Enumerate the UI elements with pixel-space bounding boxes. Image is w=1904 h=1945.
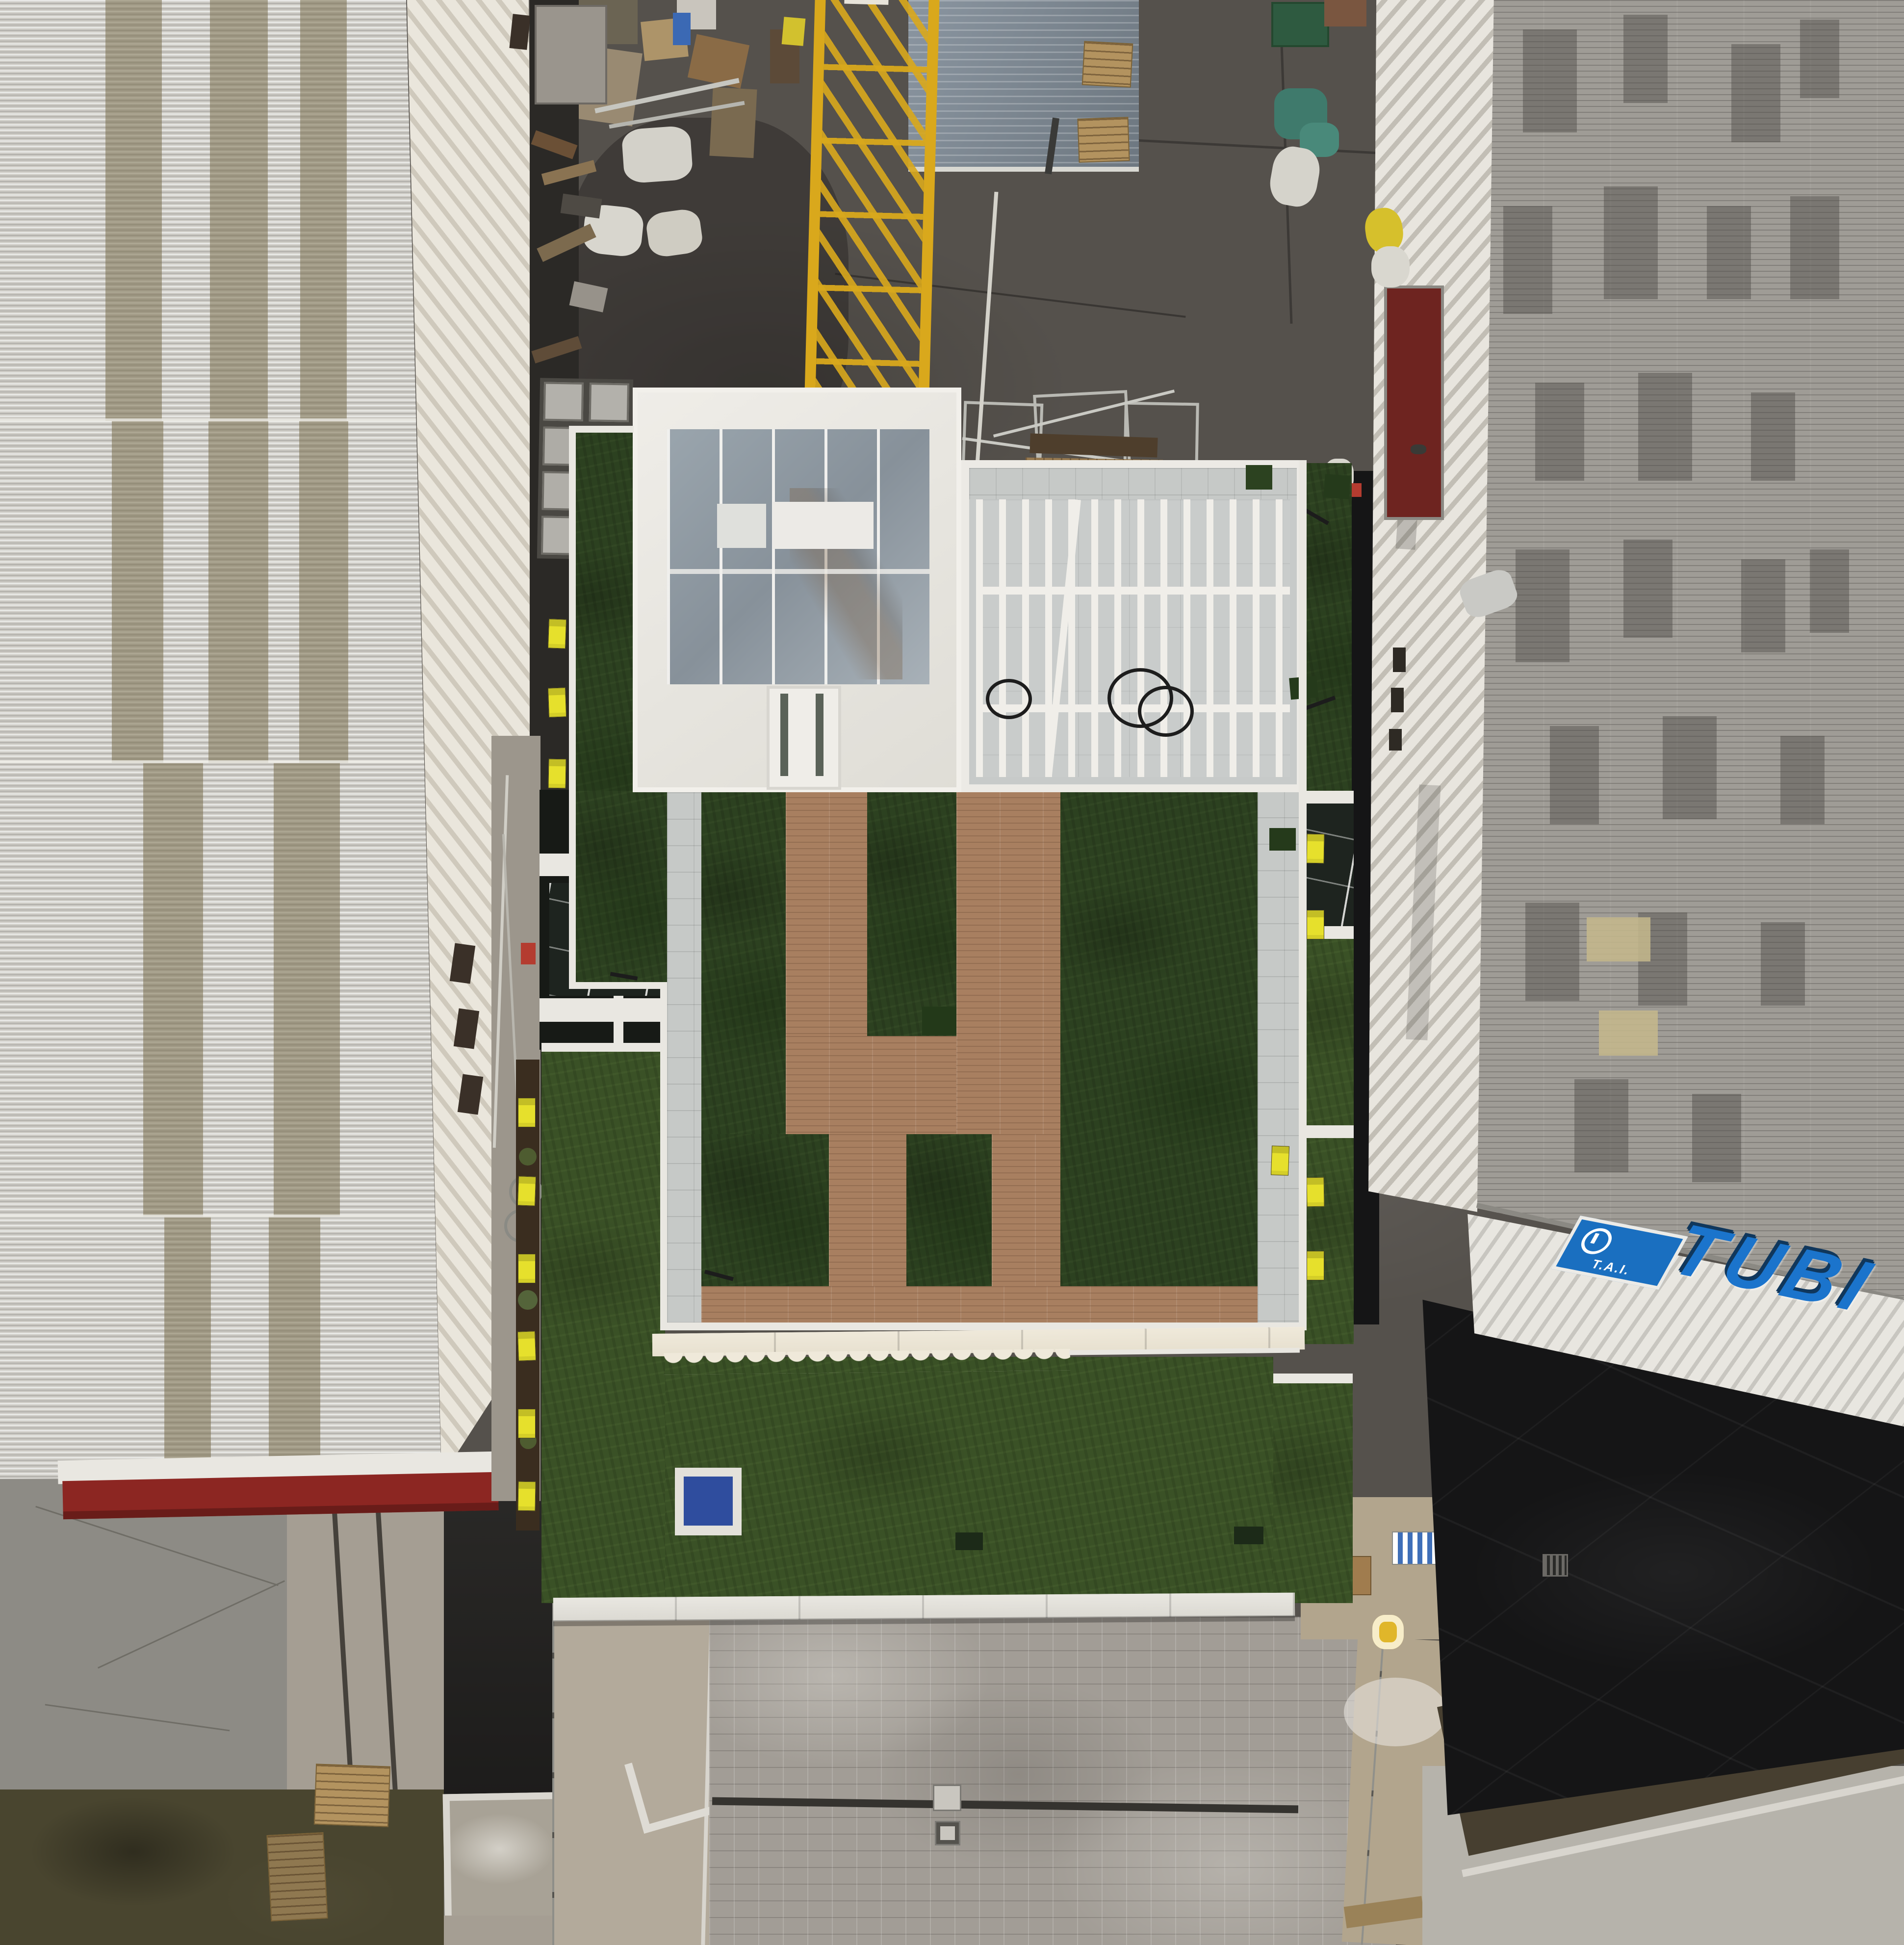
- wall-lamp: [1411, 444, 1426, 454]
- debris-plank: [569, 281, 608, 312]
- cobblestone-plaza: [709, 1617, 1396, 1945]
- warning-tag: [548, 619, 566, 648]
- pergola-beam: [976, 587, 1290, 595]
- debris-item: [709, 87, 757, 158]
- roof-patch: [1574, 1079, 1628, 1172]
- roof-tan-stripe: [299, 421, 348, 763]
- deck-bottom-band: [701, 1286, 1258, 1323]
- roof-tan-stripe: [208, 421, 268, 763]
- scalloped-awning: [663, 1349, 1070, 1376]
- grass-tile-dark: [1234, 1527, 1263, 1544]
- balcony-divider: [540, 998, 668, 1022]
- warning-tag: [1307, 910, 1324, 939]
- roof-seam: [0, 760, 444, 763]
- balcony-divider: [1305, 791, 1354, 804]
- warning-tag: [1271, 1145, 1289, 1175]
- manhole-cover: [933, 1785, 961, 1811]
- roof-patch: [1751, 392, 1795, 481]
- roof-patch: [1761, 922, 1805, 1006]
- roof-repair-beige: [1587, 917, 1650, 961]
- upper-grass-left-column: [701, 791, 786, 1134]
- roof-patch: [1638, 373, 1692, 481]
- roof-patch: [1731, 44, 1780, 142]
- roof-patch: [1707, 206, 1751, 299]
- roof-patch: [1550, 726, 1599, 824]
- grass-tile-sample: [1269, 828, 1296, 851]
- roof-repair-beige: [1599, 1011, 1658, 1056]
- debris-plank: [541, 160, 596, 185]
- balcony-divider: [1305, 1125, 1354, 1138]
- concrete-below-planter: [444, 1916, 569, 1945]
- red-box: [521, 943, 536, 964]
- white-sack: [1371, 246, 1410, 287]
- blue-tarp: [684, 1477, 733, 1526]
- opaque-pane: [717, 504, 766, 548]
- slope-vent: [509, 14, 530, 50]
- upper-grass-left-lower: [701, 1134, 829, 1286]
- roof-tan-stripe: [210, 0, 268, 421]
- debris-plank: [561, 194, 602, 219]
- band-vent: [1393, 648, 1406, 672]
- planter-box-blue-tarp: [675, 1468, 742, 1535]
- roof-patch: [1535, 383, 1584, 481]
- deck-lower-column: [829, 1134, 906, 1286]
- lower-terrace-frame: [1271, 1374, 1353, 1383]
- debris-plank: [537, 224, 596, 262]
- concrete-ramp: [287, 1479, 449, 1798]
- opaque-pane: [772, 502, 874, 549]
- roof-patch: [1790, 196, 1839, 299]
- grass-tile-sample: [1246, 465, 1272, 490]
- pallet-stack: [1082, 41, 1133, 87]
- roof-patch: [1800, 20, 1839, 98]
- roof-patch: [1503, 206, 1552, 314]
- pallet-stack: [1077, 117, 1130, 163]
- block-mold: [589, 383, 629, 422]
- roof-tan-stripe: [164, 1217, 211, 1479]
- grass-tile-dark: [955, 1532, 983, 1550]
- roof-seam: [0, 418, 444, 421]
- white-sack: [644, 207, 704, 259]
- roof-patch: [1623, 15, 1668, 103]
- roof-tan-stripe: [112, 421, 163, 763]
- upper-grass-pocket-c: [906, 1134, 992, 1286]
- red-box: [1351, 483, 1362, 497]
- parapet-east: [1299, 460, 1307, 1330]
- white-sack: [621, 125, 693, 183]
- plant-tuft: [518, 1290, 538, 1310]
- drain-box: [935, 1821, 960, 1845]
- roof-tan-stripe: [105, 0, 162, 421]
- warning-tag: [1307, 1251, 1324, 1280]
- loading-door-red: [1384, 285, 1444, 520]
- roof-patch: [1780, 736, 1825, 824]
- pergola: [961, 460, 1305, 792]
- upper-grass-pocket-b: [867, 791, 956, 1036]
- drain-grate: [1543, 1554, 1568, 1577]
- rusty-container: [1324, 0, 1366, 26]
- roof-patch: [1623, 540, 1672, 638]
- yellow-crate: [782, 17, 806, 46]
- walkway-west: [667, 792, 701, 1324]
- green-dumpster: [1271, 2, 1329, 47]
- roof-patch: [1604, 186, 1658, 299]
- pallet-stack: [314, 1763, 390, 1827]
- upper-grass-west: [576, 791, 667, 985]
- band-vent: [1391, 688, 1404, 712]
- roof-tan-stripe: [143, 763, 203, 1217]
- warning-tag: [518, 1098, 536, 1127]
- striped-bags: [1392, 1531, 1439, 1565]
- pergola-slats: [976, 499, 1290, 777]
- grass-tile-sample: [1323, 474, 1350, 499]
- warning-tag: [518, 1409, 536, 1438]
- debris-plank: [531, 336, 582, 363]
- deck-center-bar: [956, 765, 1060, 1134]
- upper-grass-east-field: [1060, 785, 1258, 1286]
- gray-container: [535, 5, 607, 104]
- lower-terrace-grass-west: [541, 1052, 665, 1603]
- aerial-photo: T.A.I. TUBI: [0, 0, 1904, 1945]
- roof-patch: [1663, 716, 1717, 819]
- warning-tag: [517, 1481, 536, 1511]
- cable-coil: [1138, 686, 1194, 737]
- roof-patch: [1692, 1094, 1741, 1182]
- deck-lower-column: [992, 1134, 1060, 1286]
- lower-balcony-grass-east: [1305, 1138, 1354, 1344]
- planter-bed-strip: [516, 1060, 540, 1530]
- warning-tag: [517, 1176, 536, 1206]
- lower-balcony-grass-east: [1305, 939, 1354, 1125]
- glass-canopy-east: [1305, 804, 1354, 926]
- plant-tuft: [519, 1148, 537, 1166]
- lower-terrace-frame: [541, 1043, 665, 1052]
- roof-patch: [1741, 559, 1785, 652]
- warning-tag: [548, 759, 566, 789]
- warning-tag: [517, 1331, 536, 1361]
- band-vent: [1389, 729, 1402, 751]
- warning-tag: [548, 687, 566, 717]
- parapet-west-lower: [660, 985, 667, 1328]
- roof-tan-stripe: [269, 1217, 320, 1479]
- cable-coil: [986, 679, 1032, 719]
- pergola-floor: [976, 499, 1290, 777]
- warning-tag: [1306, 1177, 1324, 1207]
- roof-patch: [1810, 549, 1849, 633]
- skylight-glass: [667, 429, 929, 684]
- hydrant-yellow: [1372, 1615, 1404, 1649]
- warning-tag: [1306, 834, 1324, 864]
- lower-terrace-grass-south: [665, 1357, 1273, 1603]
- block-mold: [543, 382, 584, 421]
- roof-patch: [1523, 29, 1577, 132]
- door-glass-slit: [780, 694, 788, 776]
- deck-left-bar: [786, 765, 867, 1036]
- grass-tile-dark: [922, 1007, 956, 1035]
- roof-seam: [0, 1215, 444, 1218]
- parapet-west-upper: [569, 426, 576, 985]
- roof-door: [767, 686, 841, 790]
- blue-bin: [673, 13, 691, 45]
- debris-item: [688, 34, 749, 89]
- crane-cap: [844, 0, 889, 5]
- lower-terrace-grass-east: [1271, 1383, 1353, 1603]
- parapet-step: [569, 982, 667, 989]
- door-glass-slit: [816, 694, 823, 776]
- roof-tan-stripe: [274, 763, 340, 1217]
- deck-bridge: [786, 1036, 956, 1134]
- left-warehouse-roof: [0, 0, 444, 1479]
- roof-patch: [1516, 549, 1570, 662]
- pallet-stack: [266, 1832, 328, 1921]
- tai-logo-icon: [1576, 1226, 1617, 1256]
- warning-tag: [518, 1254, 536, 1283]
- lime-stain: [1344, 1678, 1447, 1746]
- roof-patch: [1525, 903, 1579, 1001]
- right-roof-speckled: [1476, 0, 1904, 1305]
- glass-clip-row: [667, 569, 929, 574]
- parapet-top-west: [569, 426, 634, 433]
- roof-tan-stripe: [300, 0, 347, 421]
- walkway-east: [1258, 791, 1299, 1323]
- skylight-box: [633, 388, 961, 792]
